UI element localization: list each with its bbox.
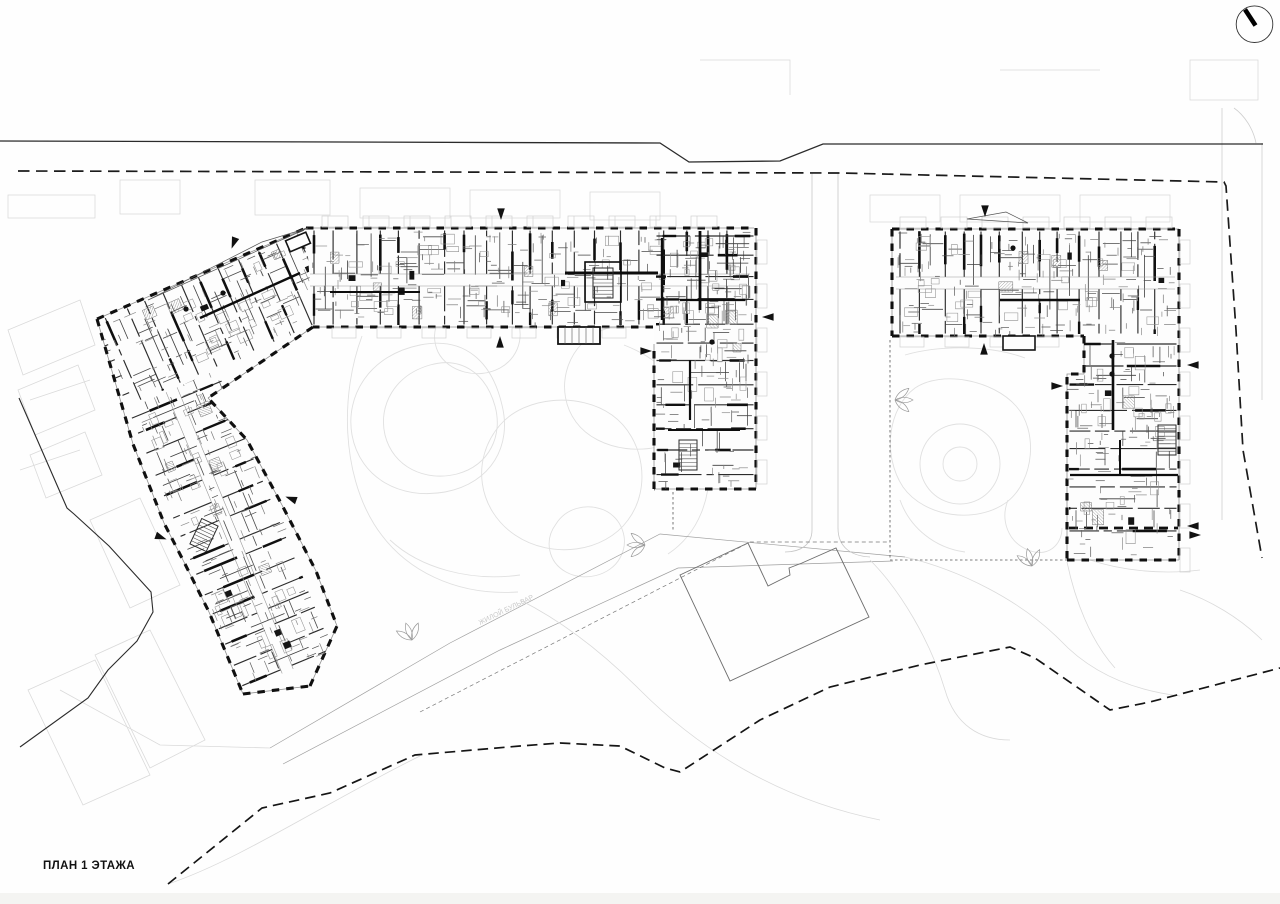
svg-text:ПЛАН 1 ЭТАЖА: ПЛАН 1 ЭТАЖА: [43, 860, 135, 872]
